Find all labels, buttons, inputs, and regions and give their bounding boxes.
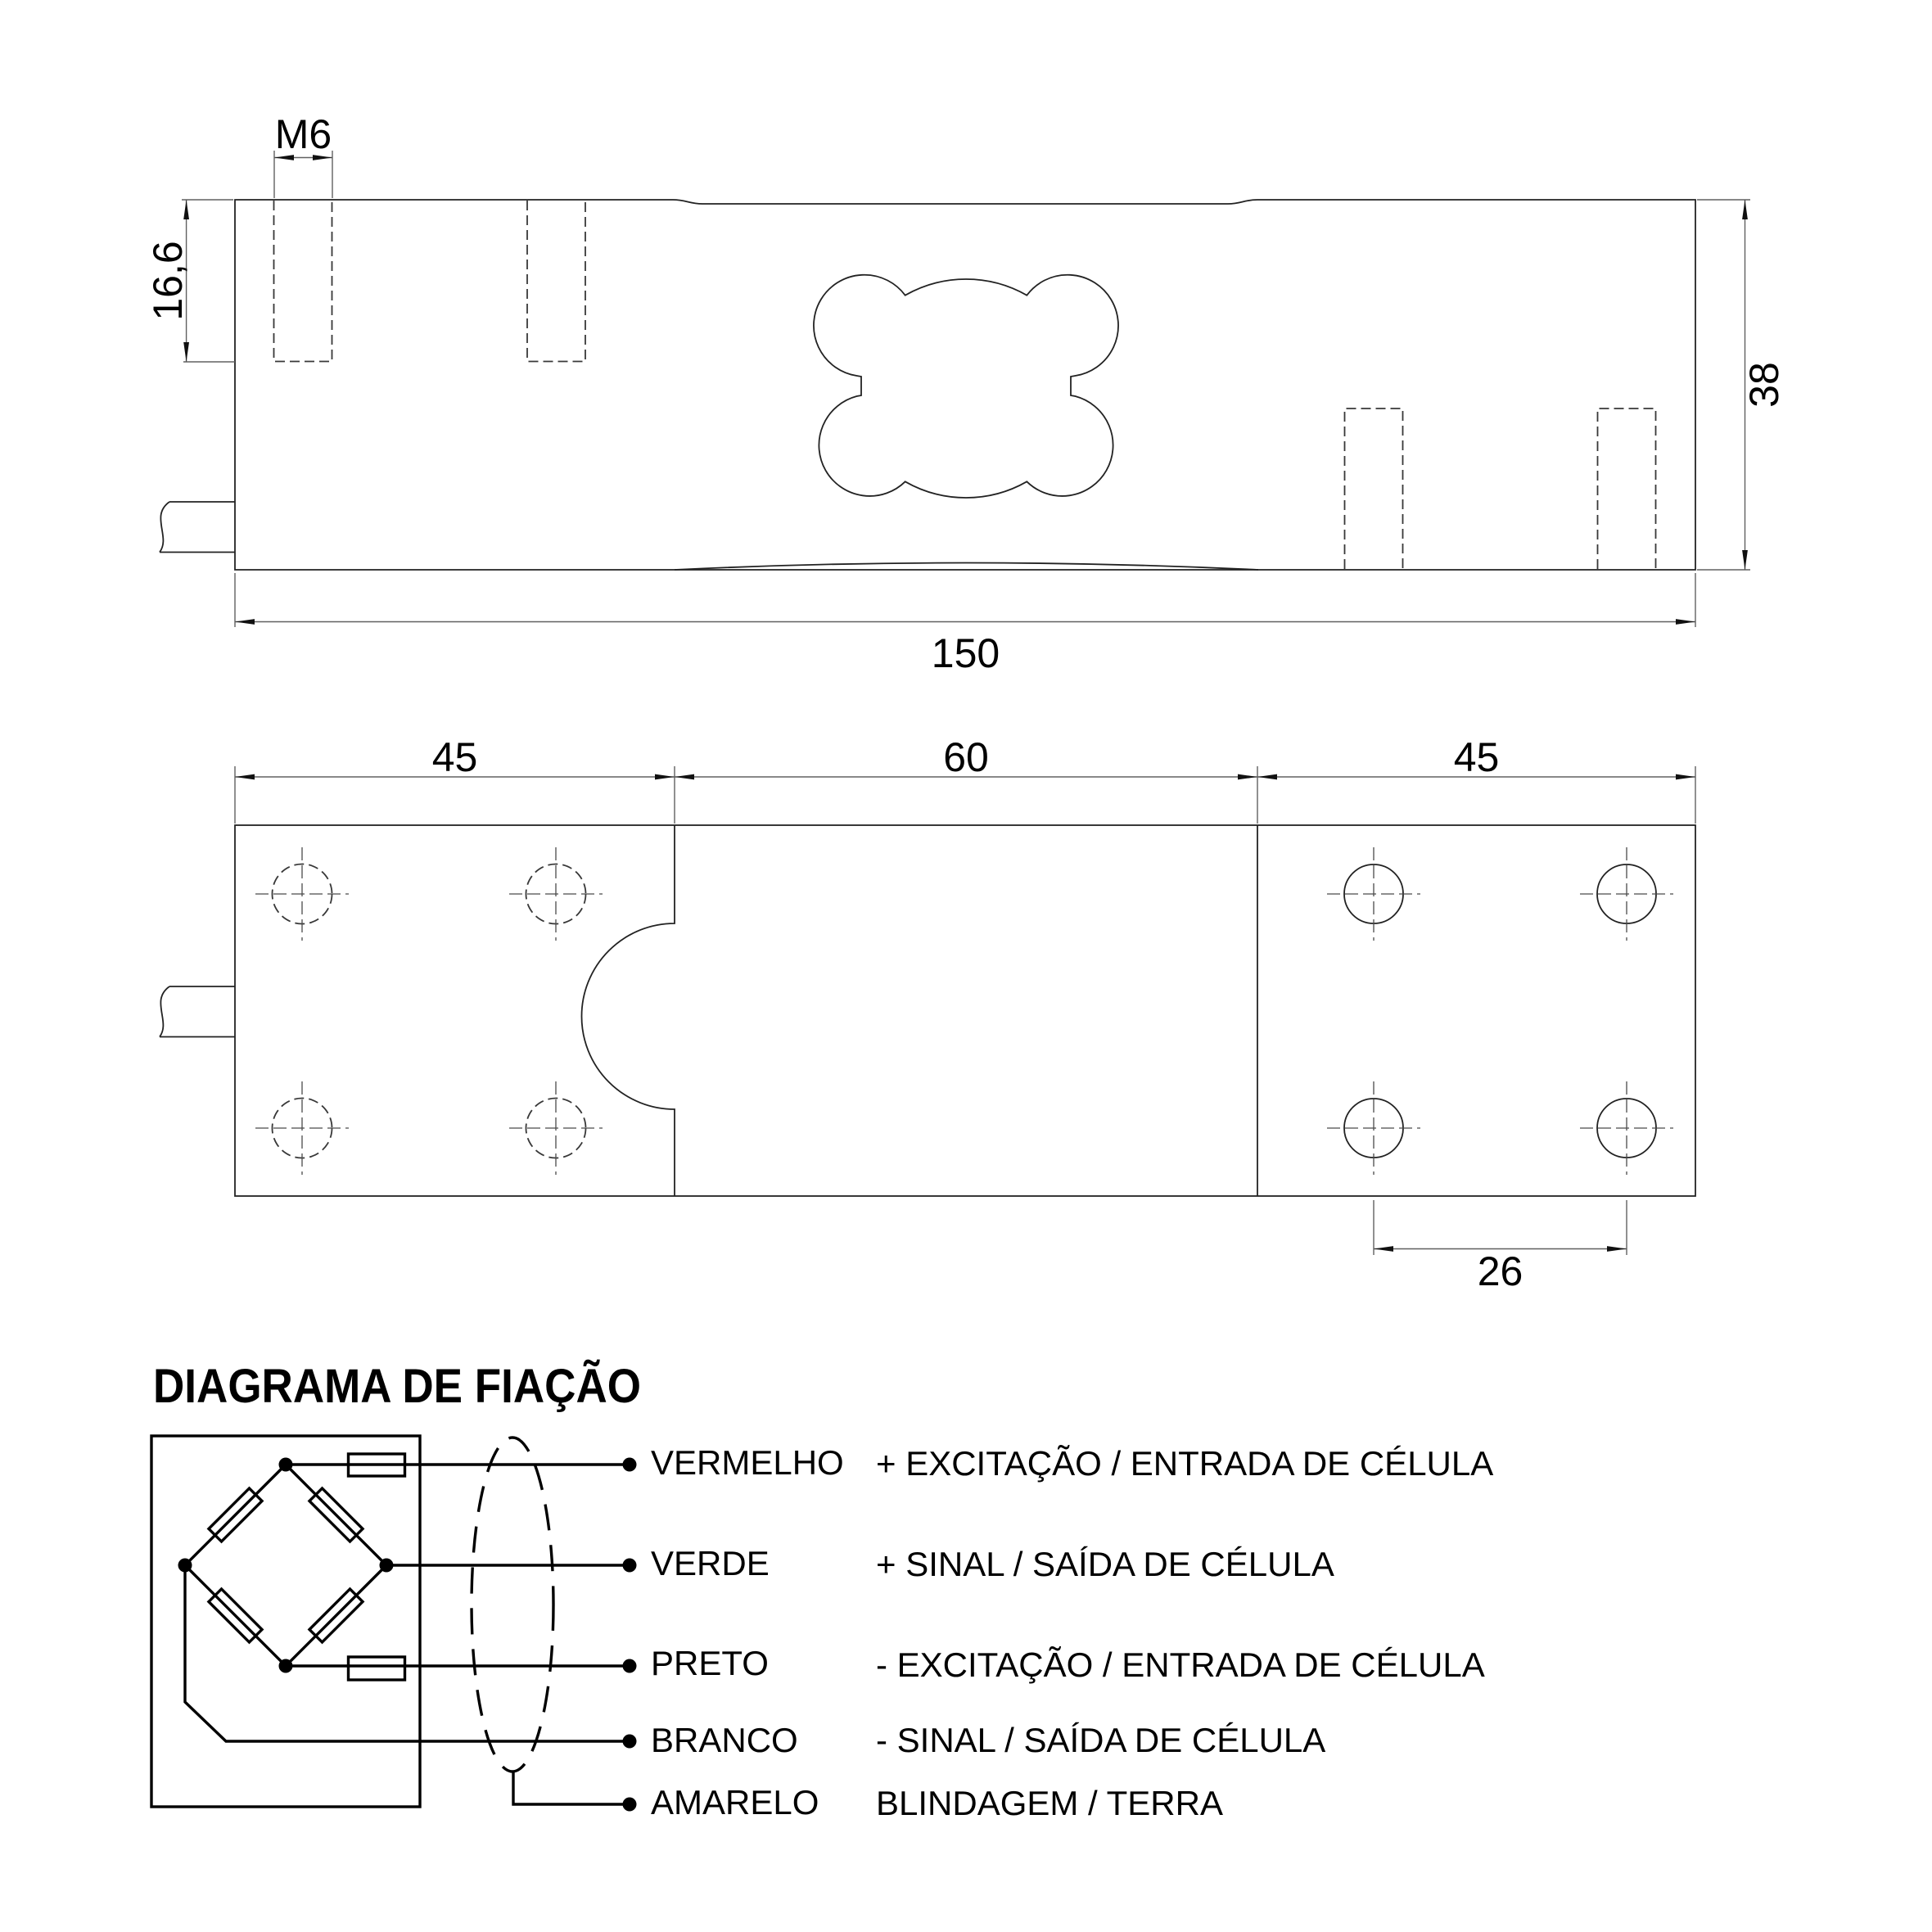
svg-text:45: 45 xyxy=(1454,734,1500,780)
svg-text:BRANCO: BRANCO xyxy=(651,1721,798,1759)
svg-text:45: 45 xyxy=(432,734,478,780)
svg-text:60: 60 xyxy=(943,734,989,780)
svg-text:M6: M6 xyxy=(275,111,332,157)
svg-text:- SINAL / SAÍDA DE CÉLULA: - SINAL / SAÍDA DE CÉLULA xyxy=(876,1721,1325,1759)
svg-text:VERMELHO: VERMELHO xyxy=(651,1443,844,1482)
svg-text:150: 150 xyxy=(932,630,1000,676)
svg-text:+ SINAL / SAÍDA DE CÉLULA: + SINAL / SAÍDA DE CÉLULA xyxy=(876,1545,1334,1583)
svg-text:VERDE: VERDE xyxy=(651,1544,770,1582)
svg-text:DIAGRAMA DE FIAÇÃO: DIAGRAMA DE FIAÇÃO xyxy=(153,1360,641,1413)
svg-text:16,6: 16,6 xyxy=(145,241,191,320)
svg-text:26: 26 xyxy=(1478,1248,1523,1294)
svg-text:BLINDAGEM / TERRA: BLINDAGEM / TERRA xyxy=(876,1784,1223,1822)
svg-text:- EXCITAÇÃO / ENTRADA DE CÉLUL: - EXCITAÇÃO / ENTRADA DE CÉLULA xyxy=(876,1645,1485,1684)
svg-text:+ EXCITAÇÃO / ENTRADA DE CÉLUL: + EXCITAÇÃO / ENTRADA DE CÉLULA xyxy=(876,1444,1493,1483)
svg-text:38: 38 xyxy=(1741,362,1787,408)
svg-text:PRETO: PRETO xyxy=(651,1644,769,1682)
svg-text:AMARELO: AMARELO xyxy=(651,1783,819,1821)
